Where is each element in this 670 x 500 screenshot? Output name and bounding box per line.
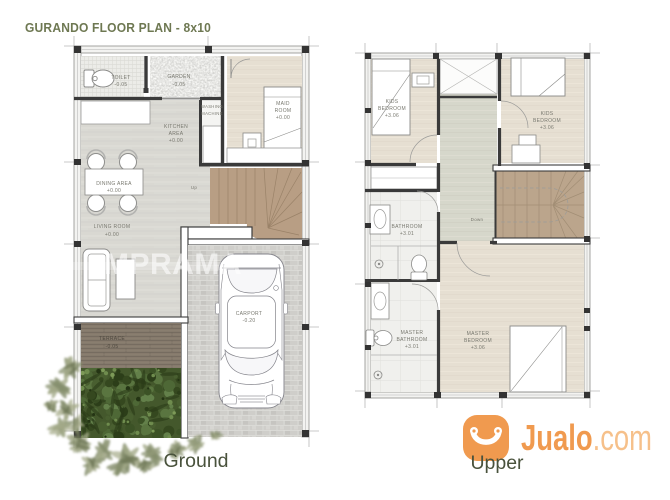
svg-text:KITCHEN: KITCHEN (164, 124, 188, 130)
svg-text:+0.00: +0.00 (276, 115, 290, 121)
svg-text:+0.00: +0.00 (107, 188, 121, 194)
svg-text:GARDEN: GARDEN (167, 74, 190, 80)
svg-text:TERRACE: TERRACE (99, 336, 125, 342)
svg-text:+3.06: +3.06 (540, 125, 554, 131)
svg-text:+3.01: +3.01 (400, 231, 414, 237)
svg-text:WASHING: WASHING (201, 104, 223, 109)
svg-text:AREA: AREA (169, 131, 184, 137)
svg-text:MPRAMA: MPRAMA (104, 248, 242, 281)
svg-text:MASTER: MASTER (467, 331, 490, 337)
svg-text:LIVING ROOM: LIVING ROOM (94, 224, 131, 230)
svg-text:MASTER: MASTER (401, 330, 424, 336)
svg-text:-0.20: -0.20 (243, 318, 256, 324)
svg-text:+3.01: +3.01 (405, 344, 419, 350)
svg-text:+3.06: +3.06 (471, 345, 485, 351)
svg-text:-0.05: -0.05 (106, 344, 119, 350)
svg-text:BEDROOM: BEDROOM (533, 118, 561, 124)
svg-text:ROOM: ROOM (275, 108, 292, 114)
svg-text:BATHROOM: BATHROOM (397, 337, 428, 343)
svg-text:KIDS: KIDS (386, 99, 399, 105)
svg-text:BATHROOM: BATHROOM (392, 224, 423, 230)
svg-text:+0.00: +0.00 (169, 138, 183, 144)
svg-text:+3.06: +3.06 (385, 113, 399, 119)
svg-text:Ground: Ground (163, 450, 228, 472)
svg-text:KIDS: KIDS (541, 111, 554, 117)
svg-text:Down: Down (471, 217, 484, 222)
svg-text:TOILET: TOILET (111, 75, 130, 81)
svg-text:-0.05: -0.05 (173, 82, 186, 88)
svg-text:+0.00: +0.00 (105, 232, 119, 238)
svg-text:Upper: Upper (470, 452, 524, 474)
svg-text:DINING AREA: DINING AREA (96, 181, 132, 187)
svg-text:BEDROOM: BEDROOM (378, 106, 406, 112)
svg-text:MAID: MAID (276, 101, 290, 107)
svg-text:BEDROOM: BEDROOM (464, 338, 492, 344)
svg-text:-0.05: -0.05 (115, 82, 128, 88)
svg-text:CARPORT: CARPORT (236, 311, 262, 317)
svg-text:Jualo.com: Jualo.com (521, 417, 652, 458)
svg-text:GURANDO FLOOR PLAN - 8x10: GURANDO FLOOR PLAN - 8x10 (25, 21, 211, 35)
svg-text:MACHINE: MACHINE (201, 111, 222, 116)
svg-text:Up: Up (191, 185, 198, 190)
